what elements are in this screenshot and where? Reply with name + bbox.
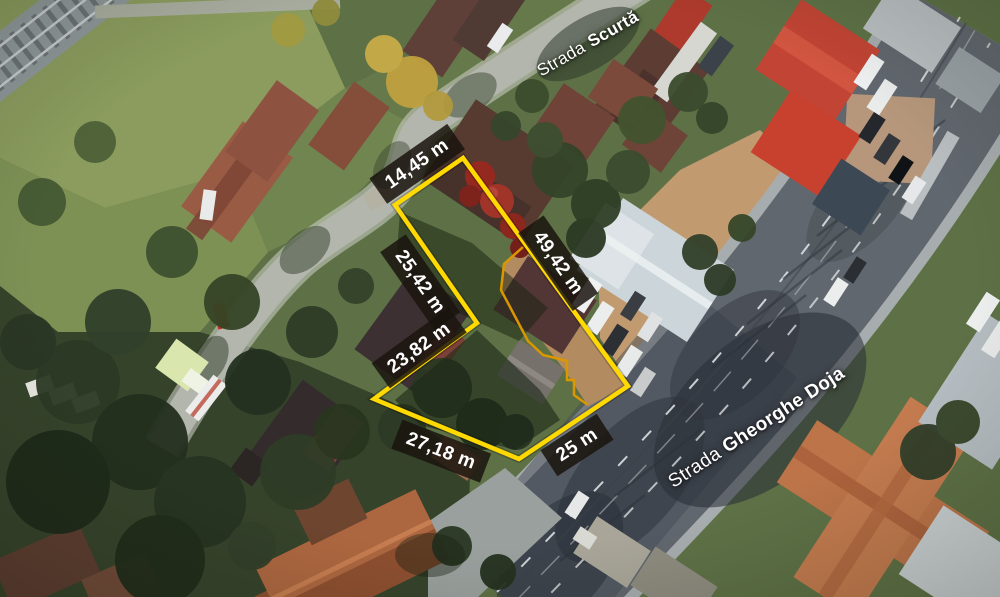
satellite-map-image: 14,45 m 49,42 m 25,42 m 23,82 m 27,18 m … [0, 0, 1000, 597]
vignette [0, 0, 1000, 597]
satellite-scene [0, 0, 1000, 597]
